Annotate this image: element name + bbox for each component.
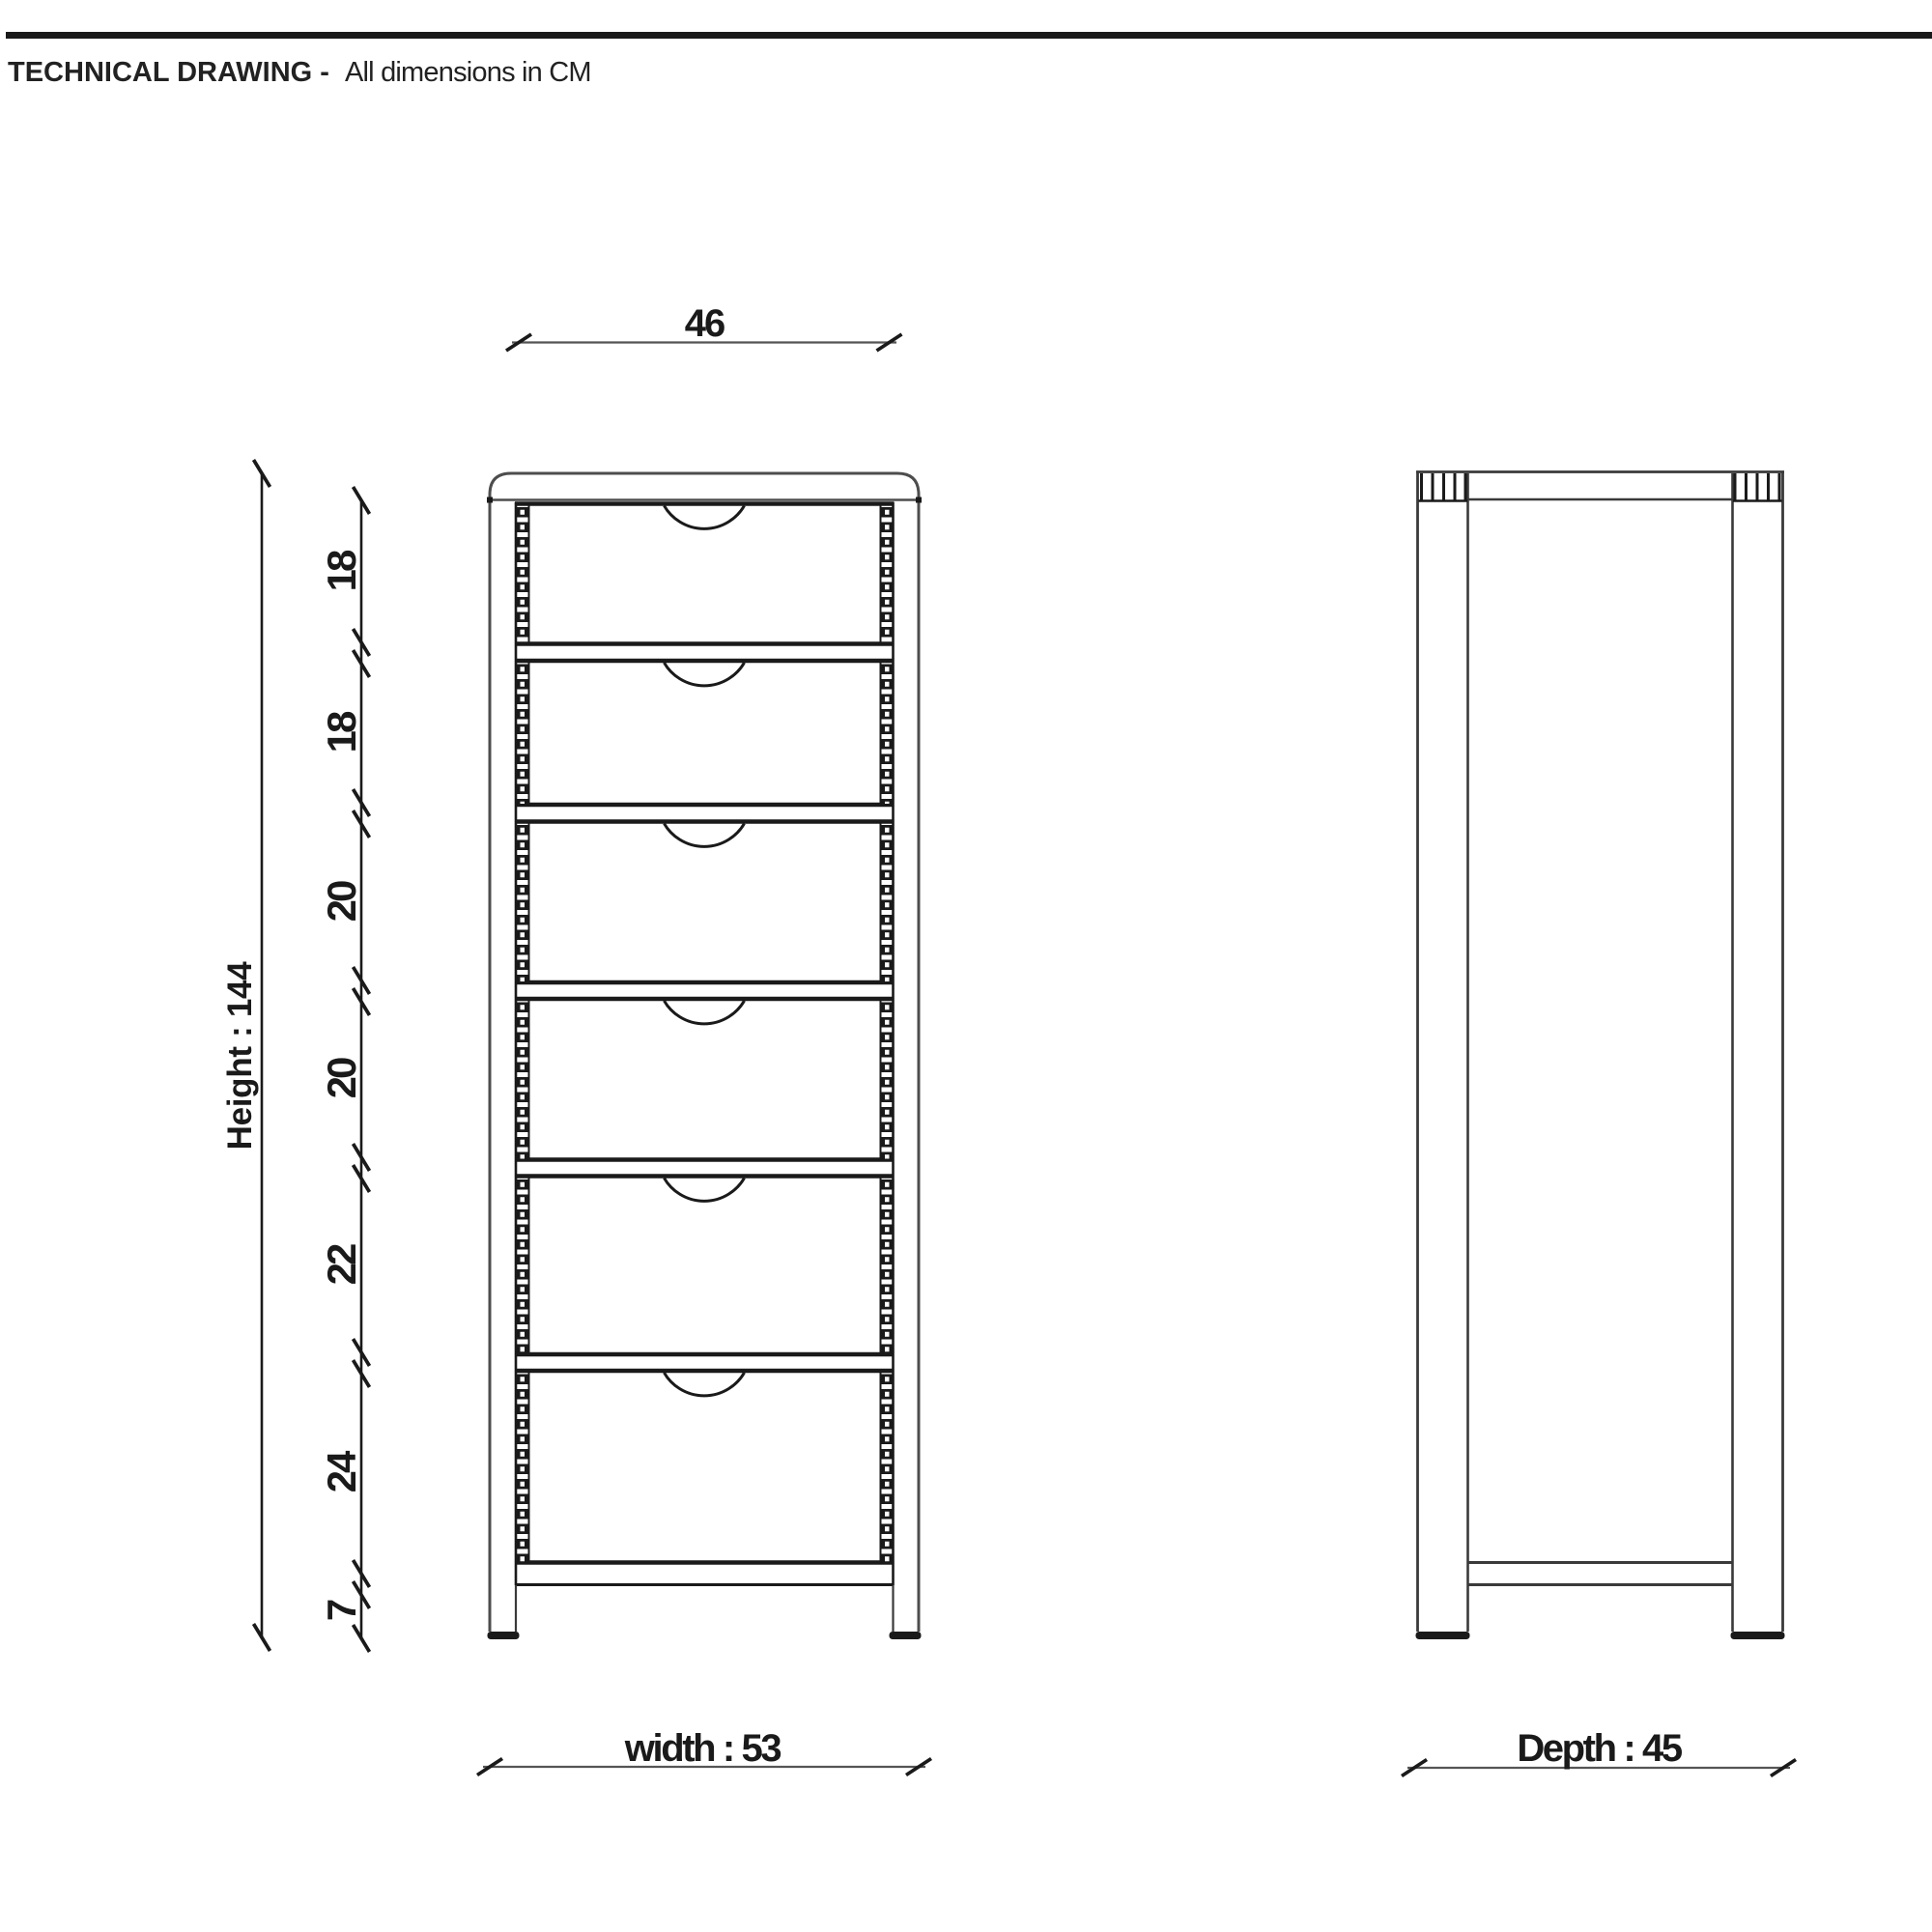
svg-text:7: 7 xyxy=(319,1600,364,1621)
svg-text:All dimensions in CM: All dimensions in CM xyxy=(345,57,591,88)
svg-text:width : 53: width : 53 xyxy=(624,1727,781,1770)
svg-text:Height : 144: Height : 144 xyxy=(221,961,259,1151)
svg-text:Depth : 45: Depth : 45 xyxy=(1517,1727,1683,1770)
svg-text:24: 24 xyxy=(319,1450,364,1492)
svg-text:46: 46 xyxy=(685,302,724,345)
svg-text:18: 18 xyxy=(319,711,364,753)
svg-text:18: 18 xyxy=(319,550,364,591)
svg-text:20: 20 xyxy=(319,881,364,922)
svg-text:20: 20 xyxy=(319,1058,364,1098)
svg-text:22: 22 xyxy=(319,1244,364,1285)
svg-text:TECHNICAL DRAWING -: TECHNICAL DRAWING - xyxy=(8,57,329,88)
